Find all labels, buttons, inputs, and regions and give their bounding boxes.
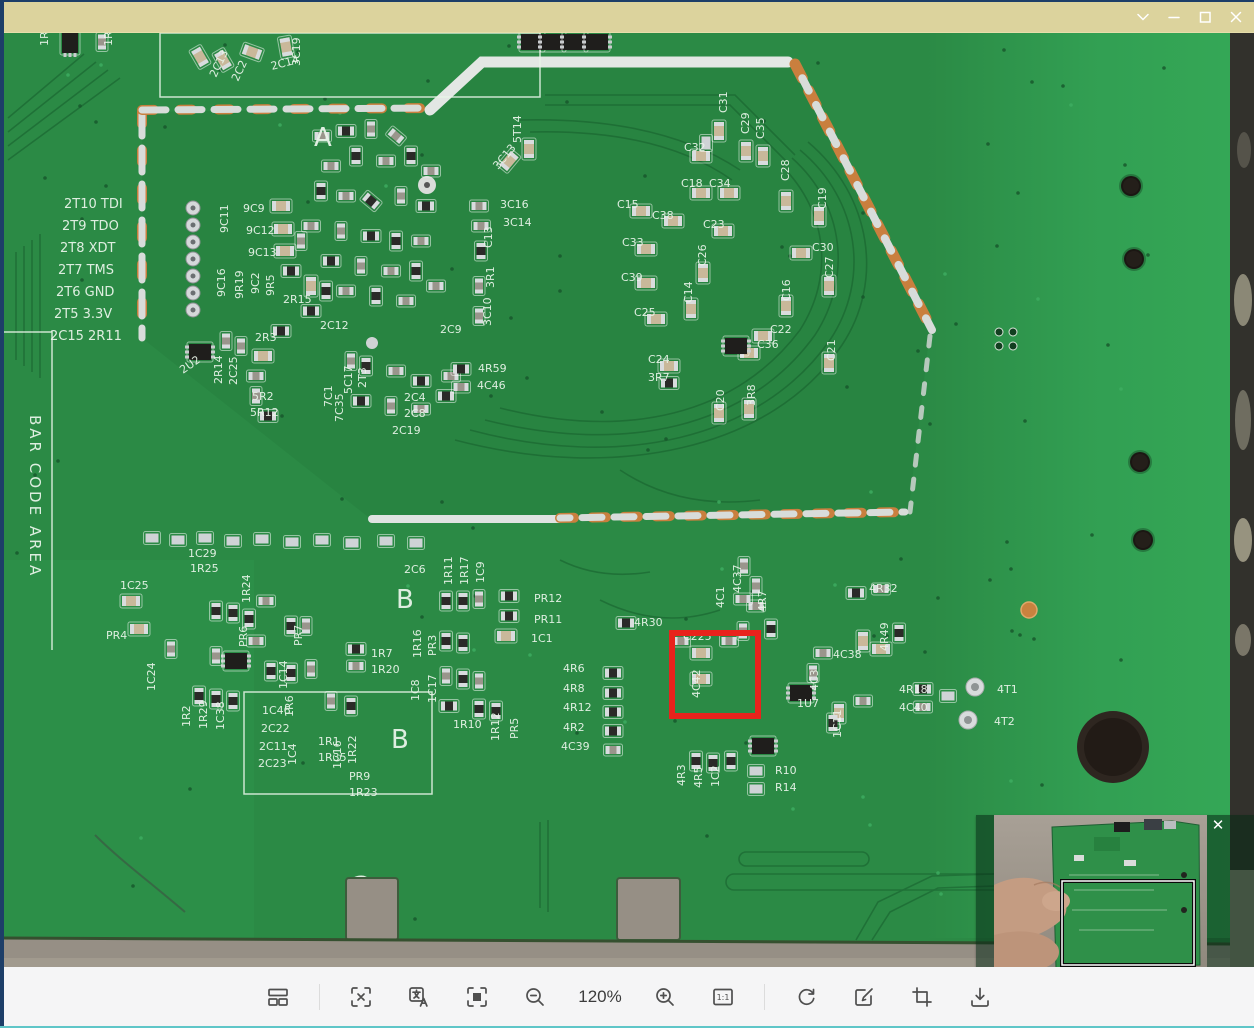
svg-text:4C1: 4C1	[714, 586, 727, 608]
svg-text:2C6: 2C6	[404, 563, 426, 576]
svg-text:2T6 GND: 2T6 GND	[56, 285, 114, 300]
svg-text:1R10: 1R10	[453, 718, 482, 731]
svg-text:PR6: PR6	[237, 626, 250, 647]
svg-text:1R: 1R	[102, 33, 115, 46]
svg-text:1R16: 1R16	[411, 629, 424, 658]
svg-text:2C12: 2C12	[320, 319, 349, 332]
svg-text:PR12: PR12	[534, 592, 562, 605]
panels-icon[interactable]	[261, 980, 295, 1014]
zoom-level-value[interactable]: 120%	[576, 987, 624, 1007]
svg-text:4R7: 4R7	[756, 590, 769, 612]
svg-text:5T14: 5T14	[511, 115, 524, 143]
svg-text:C39: C39	[621, 271, 643, 284]
svg-text:3C16: 3C16	[500, 198, 529, 211]
svg-text:1R11: 1R11	[442, 556, 455, 585]
ocr-icon[interactable]	[344, 980, 378, 1014]
svg-text:1R7: 1R7	[371, 647, 393, 660]
image-viewer-window: 1R1R2C132C22C143C192T10 TDI2T9 TDO2T8 XD…	[0, 0, 1254, 1028]
svg-text:1R6: 1R6	[283, 695, 296, 717]
svg-text:2T5 3.3V: 2T5 3.3V	[54, 307, 112, 322]
svg-text:B: B	[391, 725, 409, 755]
svg-text:2C22: 2C22	[261, 722, 290, 735]
svg-text:4R8: 4R8	[563, 682, 585, 695]
svg-text:2T9 TDO: 2T9 TDO	[62, 219, 119, 234]
svg-text:1U7: 1U7	[797, 697, 819, 710]
thumb-pcb	[1052, 819, 1200, 967]
svg-text:5R2: 5R2	[252, 390, 274, 403]
svg-text:1C8: 1C8	[409, 679, 422, 701]
svg-text:C25: C25	[634, 306, 656, 319]
svg-text:PR5: PR5	[508, 718, 521, 739]
window-border	[0, 0, 1254, 2]
svg-text:PR9: PR9	[349, 770, 370, 783]
svg-text:C22: C22	[770, 323, 792, 336]
svg-text:1R2: 1R2	[180, 705, 193, 727]
svg-text:4C40: 4C40	[899, 701, 928, 714]
svg-text:PR11: PR11	[534, 613, 562, 626]
svg-text:4C38: 4C38	[833, 648, 862, 661]
svg-text:C31: C31	[717, 91, 730, 113]
svg-text:R10: R10	[775, 764, 797, 777]
svg-text:1C24: 1C24	[145, 662, 158, 691]
svg-text:C13: C13	[482, 226, 495, 248]
svg-text:C23: C23	[703, 218, 725, 231]
svg-text:C33: C33	[622, 236, 644, 249]
crop-icon[interactable]	[905, 980, 939, 1014]
svg-text:9C11: 9C11	[218, 204, 231, 233]
svg-text:4C3: 4C3	[808, 669, 821, 691]
svg-text:5R12: 5R12	[250, 406, 279, 419]
svg-text:1C25: 1C25	[120, 579, 149, 592]
svg-text:1R23: 1R23	[349, 786, 378, 799]
minimize-button[interactable]	[1166, 9, 1182, 25]
svg-text:3R1: 3R1	[484, 266, 497, 288]
svg-text:3R7: 3R7	[648, 371, 670, 384]
svg-text:1R29: 1R29	[197, 700, 210, 729]
svg-text:4C37: 4C37	[731, 564, 744, 593]
svg-text:PR7: PR7	[292, 625, 305, 646]
svg-text:BAR CODE AREA: BAR CODE AREA	[26, 415, 44, 578]
svg-text:C38: C38	[652, 209, 674, 222]
svg-text:9C2: 9C2	[249, 272, 262, 294]
toolbar-separator	[319, 984, 320, 1010]
svg-text:PR4: PR4	[106, 629, 127, 642]
svg-text:9R5: 9R5	[264, 274, 277, 296]
save-icon[interactable]	[963, 980, 997, 1014]
svg-text:C24: C24	[648, 353, 670, 366]
svg-text:C32: C32	[684, 141, 706, 154]
chevron-down-icon[interactable]	[1135, 9, 1151, 25]
svg-text:4T2: 4T2	[994, 715, 1015, 728]
solder-pad-hole	[424, 182, 430, 188]
svg-text:C26: C26	[696, 244, 709, 266]
svg-text:1C38: 1C38	[214, 701, 227, 730]
svg-text:C29: C29	[739, 112, 752, 134]
svg-text:R14: R14	[775, 781, 797, 794]
svg-text:2T10 TDI: 2T10 TDI	[64, 197, 123, 212]
svg-text:2R15: 2R15	[283, 293, 312, 306]
svg-text:C18: C18	[681, 177, 703, 190]
svg-text:2C8: 2C8	[404, 407, 426, 420]
svg-text:2T3: 2T3	[356, 367, 369, 388]
bottom-toolbar: 120% 1:1	[4, 967, 1254, 1026]
svg-text:C21: C21	[825, 339, 838, 361]
solder-pad	[366, 337, 378, 349]
title-bar[interactable]	[4, 2, 1254, 33]
svg-text:C16: C16	[780, 279, 793, 301]
svg-text:2R14: 2R14	[212, 355, 225, 384]
svg-text:C19: C19	[816, 187, 829, 209]
translate-icon[interactable]	[402, 980, 436, 1014]
svg-text:4C39: 4C39	[561, 740, 590, 753]
svg-text:2C23: 2C23	[258, 757, 287, 770]
edit-icon[interactable]	[847, 980, 881, 1014]
svg-text:2C4: 2C4	[404, 391, 426, 404]
svg-text:2T8 XDT: 2T8 XDT	[60, 241, 116, 256]
svg-text:4R59: 4R59	[478, 362, 507, 375]
svg-text:3C19: 3C19	[290, 37, 303, 66]
svg-text:B: B	[396, 585, 414, 615]
svg-text:4C46: 4C46	[477, 379, 506, 392]
svg-text:1C2: 1C2	[709, 765, 722, 787]
svg-text:1C1: 1C1	[531, 632, 553, 645]
svg-text:9C12: 9C12	[246, 224, 275, 237]
svg-text:1:1: 1:1	[717, 993, 730, 1002]
svg-text:2C15 2R11: 2C15 2R11	[50, 329, 122, 344]
svg-text:4R3: 4R3	[675, 764, 688, 786]
svg-text:1C11: 1C11	[831, 709, 844, 738]
svg-text:4R6: 4R6	[563, 662, 585, 675]
svg-text:PR3: PR3	[426, 635, 439, 656]
svg-text:4T1: 4T1	[997, 683, 1018, 696]
zoom-out-icon[interactable]	[518, 980, 552, 1014]
svg-text:C20: C20	[714, 389, 727, 411]
svg-text:9R19: 9R19	[233, 270, 246, 299]
window-border	[0, 0, 4, 1028]
svg-text:C28: C28	[779, 159, 792, 181]
svg-text:3R8: 3R8	[745, 384, 758, 406]
actual-size-icon[interactable]: 1:1	[706, 980, 740, 1014]
fit-screen-icon[interactable]	[460, 980, 494, 1014]
svg-text:1C4: 1C4	[286, 743, 299, 765]
svg-text:3C10: 3C10	[481, 297, 494, 326]
svg-text:1R22: 1R22	[346, 735, 359, 764]
pcb-bright-region	[925, 33, 1232, 938]
svg-text:4C42: 4C42	[690, 669, 703, 698]
svg-text:4R30: 4R30	[634, 616, 663, 629]
svg-text:4R49: 4R49	[878, 622, 891, 651]
svg-text:C30: C30	[812, 241, 834, 254]
svg-text:1R20: 1R20	[371, 663, 400, 676]
svg-text:2C19: 2C19	[392, 424, 421, 437]
svg-text:5C17: 5C17	[342, 365, 355, 394]
svg-text:C34: C34	[709, 177, 731, 190]
svg-text:C36: C36	[757, 338, 779, 351]
toolbar-separator	[764, 984, 765, 1010]
svg-text:2C9: 2C9	[440, 323, 462, 336]
close-button[interactable]	[1228, 9, 1244, 25]
svg-text:2C25: 2C25	[227, 356, 240, 385]
svg-text:1C17: 1C17	[426, 674, 439, 703]
svg-text:1R17: 1R17	[458, 556, 471, 585]
svg-text:2R3: 2R3	[255, 331, 277, 344]
svg-text:C35: C35	[754, 117, 767, 139]
svg-text:2C11: 2C11	[259, 740, 288, 753]
svg-text:1C9: 1C9	[474, 561, 487, 583]
navigator-thumbnail[interactable]: ✕	[976, 815, 1254, 967]
zoom-in-icon[interactable]	[648, 980, 682, 1014]
svg-text:7C35: 7C35	[333, 393, 346, 422]
svg-text:C27: C27	[823, 256, 836, 278]
svg-text:1R12: 1R12	[489, 712, 502, 741]
image-viewport[interactable]: 1R1R2C132C22C143C192T10 TDI2T9 TDO2T8 XD…	[4, 33, 1254, 967]
svg-text:1C29: 1C29	[188, 547, 217, 560]
svg-text:4R2: 4R2	[563, 721, 585, 734]
svg-text:9C13: 9C13	[248, 246, 277, 259]
maximize-button[interactable]	[1197, 9, 1213, 25]
rotate-icon[interactable]	[789, 980, 823, 1014]
svg-text:C14: C14	[682, 281, 695, 303]
svg-text:1R: 1R	[38, 33, 51, 46]
svg-text:1C16: 1C16	[331, 740, 344, 769]
svg-text:4R5: 4R5	[692, 766, 705, 788]
svg-text:9C9: 9C9	[243, 202, 265, 215]
svg-text:4R18: 4R18	[899, 683, 928, 696]
svg-text:1R25: 1R25	[190, 562, 219, 575]
svg-text:A: A	[314, 123, 332, 153]
svg-text:4R12: 4R12	[563, 701, 592, 714]
svg-text:3C14: 3C14	[503, 216, 532, 229]
navigator-close-icon[interactable]: ✕	[1209, 816, 1227, 834]
svg-text:1R24: 1R24	[240, 574, 253, 603]
svg-text:9C16: 9C16	[215, 268, 228, 297]
svg-text:1C14: 1C14	[277, 660, 290, 689]
svg-text:C15: C15	[617, 198, 639, 211]
navigator-photo	[994, 815, 1207, 967]
svg-text:4R32: 4R32	[869, 582, 898, 595]
svg-text:2T7 TMS: 2T7 TMS	[58, 263, 114, 278]
